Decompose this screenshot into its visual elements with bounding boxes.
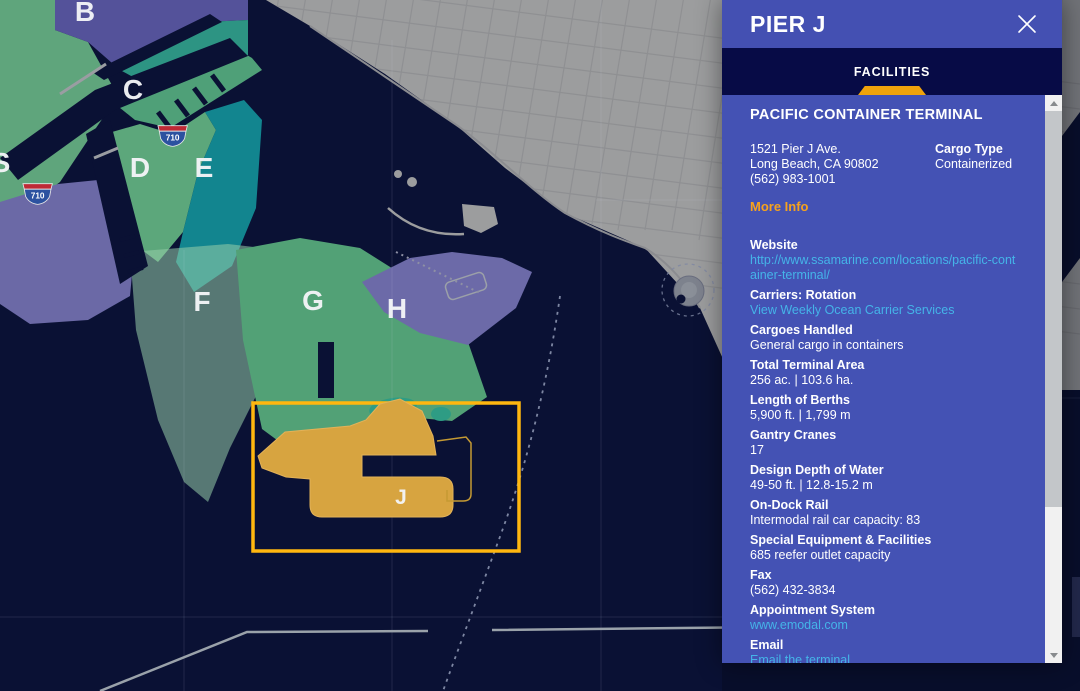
fact-water-depth: Design Depth of Water 49-50 ft. | 12.8-1… bbox=[750, 463, 1016, 493]
panel-body: PACIFIC CONTAINER TERMINAL 1521 Pier J A… bbox=[722, 95, 1062, 663]
terminal-phone: (562) 983-1001 bbox=[750, 172, 935, 187]
fact-appointment-system: Appointment System www.emodal.com bbox=[750, 603, 1016, 633]
cargo-type-block: Cargo Type Containerized bbox=[935, 142, 1016, 187]
cargo-type-label: Cargo Type bbox=[935, 142, 1016, 157]
scrollbar-down-button[interactable] bbox=[1045, 647, 1062, 663]
cargo-type-value: Containerized bbox=[935, 157, 1016, 172]
more-info-link[interactable]: More Info bbox=[750, 199, 1016, 214]
fact-carriers: Carriers: Rotation View Weekly Ocean Car… bbox=[750, 288, 1016, 318]
pier-detail-panel: PIER J FACILITIES PACIFIC CONTAINER TERM… bbox=[722, 0, 1062, 663]
scrollbar-up-button[interactable] bbox=[1045, 95, 1062, 111]
pier-label-s[interactable]: S bbox=[0, 147, 10, 178]
tab-bar: FACILITIES bbox=[722, 48, 1062, 95]
facts-list: Website http://www.ssamarine.com/locatio… bbox=[750, 238, 1016, 663]
address-line-1: 1521 Pier J Ave. bbox=[750, 142, 935, 157]
website-link[interactable]: http://www.ssamarine.com/locations/pacif… bbox=[750, 253, 1016, 283]
arrow-up-icon bbox=[1050, 101, 1058, 106]
panel-header: PIER J bbox=[722, 0, 1062, 48]
terminal-name: PACIFIC CONTAINER TERMINAL bbox=[750, 107, 1016, 123]
terminal-address: 1521 Pier J Ave. Long Beach, CA 90802 (5… bbox=[750, 142, 935, 187]
close-icon[interactable] bbox=[1016, 13, 1038, 35]
pier-label-e[interactable]: E bbox=[195, 152, 214, 183]
svg-text:710: 710 bbox=[31, 191, 45, 200]
fact-cargoes: Cargoes Handled General cargo in contain… bbox=[750, 323, 1016, 353]
panel-scrollbar[interactable] bbox=[1045, 95, 1062, 663]
fact-fax: Fax (562) 432-3834 bbox=[750, 568, 1016, 598]
fact-gantry-cranes: Gantry Cranes 17 bbox=[750, 428, 1016, 458]
fact-special-equipment: Special Equipment & Facilities 685 reefe… bbox=[750, 533, 1016, 563]
terminal-info-row: 1521 Pier J Ave. Long Beach, CA 90802 (5… bbox=[750, 142, 1016, 187]
pier-label-b[interactable]: B bbox=[75, 0, 95, 27]
fact-website: Website http://www.ssamarine.com/locatio… bbox=[750, 238, 1016, 283]
pier-label-d[interactable]: D bbox=[130, 152, 150, 183]
fact-on-dock-rail: On-Dock Rail Intermodal rail car capacit… bbox=[750, 498, 1016, 528]
pier-label-g[interactable]: G bbox=[302, 285, 324, 316]
address-line-2: Long Beach, CA 90802 bbox=[750, 157, 935, 172]
pier-label-c[interactable]: C bbox=[123, 74, 143, 105]
appointment-link[interactable]: www.emodal.com bbox=[750, 618, 1016, 633]
pier-label-f[interactable]: F bbox=[193, 286, 210, 317]
port-map-app: 710 710 B C D E F G H S J PIER J FACILIT… bbox=[0, 0, 1080, 691]
scrollbar-thumb[interactable] bbox=[1045, 111, 1062, 507]
fact-email: Email Email the terminal bbox=[750, 638, 1016, 663]
fact-terminal-area: Total Terminal Area 256 ac. | 103.6 ha. bbox=[750, 358, 1016, 388]
pier-label-h[interactable]: H bbox=[387, 293, 407, 324]
carriers-link[interactable]: View Weekly Ocean Carrier Services bbox=[750, 303, 1016, 318]
svg-text:710: 710 bbox=[166, 133, 180, 142]
arrow-down-icon bbox=[1050, 653, 1058, 658]
tab-facilities[interactable]: FACILITIES bbox=[854, 65, 930, 79]
fact-berth-length: Length of Berths 5,900 ft. | 1,799 m bbox=[750, 393, 1016, 423]
panel-title: PIER J bbox=[750, 11, 826, 38]
tab-active-indicator bbox=[858, 86, 926, 95]
pier-label-j[interactable]: J bbox=[395, 486, 407, 509]
email-link[interactable]: Email the terminal bbox=[750, 653, 1016, 663]
